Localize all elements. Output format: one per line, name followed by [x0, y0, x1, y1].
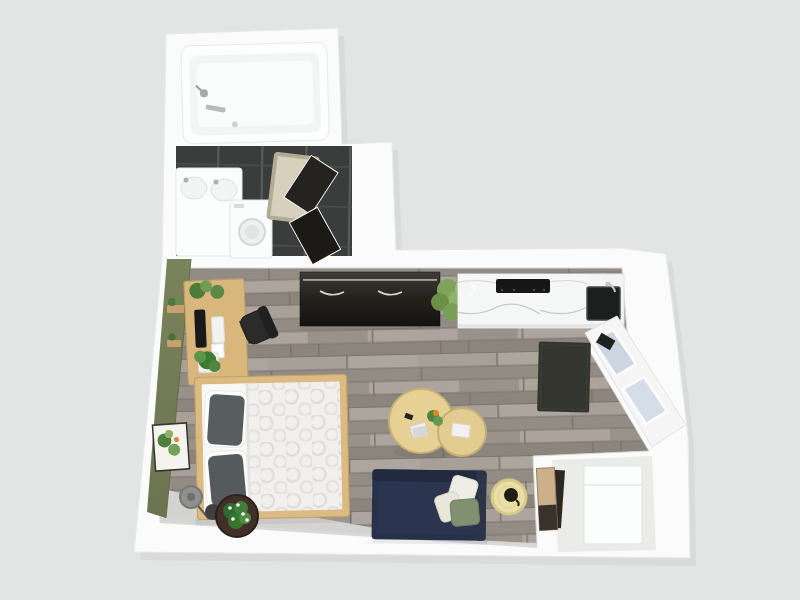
floor-plan-svg [0, 0, 800, 600]
sideboard [300, 272, 440, 330]
refrigerator-cabinet [584, 466, 642, 544]
double-bed [193, 374, 352, 525]
desk [184, 279, 248, 386]
leaning-artwork [536, 468, 557, 531]
bed-pillow-dark-1 [207, 394, 245, 446]
bathroom [176, 42, 352, 265]
cooktop [496, 279, 550, 293]
kitchen-counter [458, 274, 624, 328]
area-rug [537, 341, 591, 412]
floor-plan-screenshot [0, 0, 800, 600]
desk-monitor [194, 309, 207, 347]
navy-sofa [371, 469, 488, 545]
magazine [451, 423, 471, 438]
cushion-sage [450, 498, 480, 526]
plant-stool [216, 495, 258, 537]
desk-keyboard [211, 317, 224, 343]
round-pouf [492, 480, 526, 514]
bathtub [181, 42, 330, 144]
washing-machine [230, 200, 272, 258]
green-wall-art [152, 423, 189, 471]
